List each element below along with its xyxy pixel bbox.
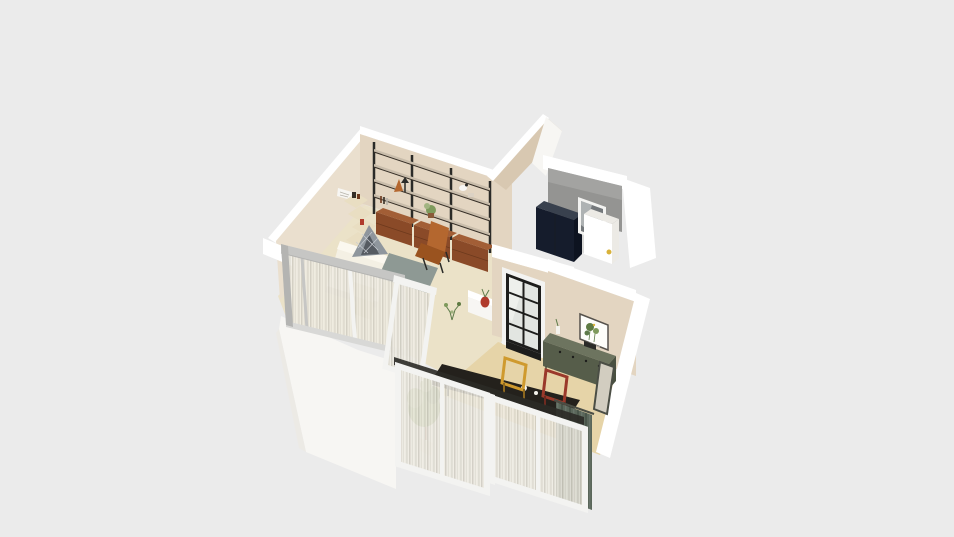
shelf-plant-foliage <box>424 203 430 209</box>
sideboard-handle <box>572 356 574 358</box>
shelf-books <box>352 192 356 198</box>
plant-leaf <box>457 302 461 306</box>
red-decor-item <box>360 219 364 225</box>
yellow-item <box>607 250 612 255</box>
shelf-plant-pot <box>428 213 434 218</box>
shelf-books <box>357 194 360 199</box>
art-dot <box>593 324 595 326</box>
white-vase <box>556 326 560 334</box>
floorplan-svg <box>0 0 954 537</box>
box-decor <box>468 193 474 197</box>
plant-leaf <box>444 303 448 307</box>
art-plant <box>586 323 594 331</box>
art-plant <box>593 328 599 334</box>
sideboard-handle <box>559 351 561 353</box>
plant-leaf <box>450 310 453 313</box>
floorplan-canvas <box>0 0 954 537</box>
sideboard-handle <box>585 360 587 362</box>
bird-head <box>465 184 468 187</box>
washer-side <box>612 219 619 264</box>
art-plant <box>585 331 590 336</box>
white-cup <box>534 391 538 395</box>
red-vase <box>481 297 490 308</box>
